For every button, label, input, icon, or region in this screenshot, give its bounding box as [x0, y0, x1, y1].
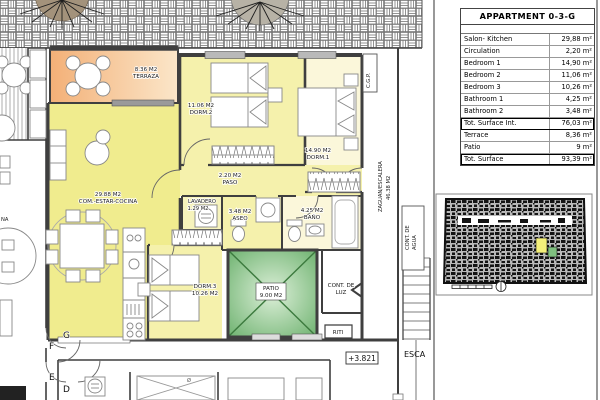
svg-text:ASEO: ASEO [232, 216, 248, 222]
paso-label: 2.20 M2 [219, 173, 242, 179]
svg-text:DORM.1: DORM.1 [307, 155, 330, 161]
wardrobe [308, 172, 360, 192]
dorm1-label: 14.90 M2 [305, 148, 331, 154]
svg-text:TERRAZA: TERRAZA [132, 74, 159, 80]
svg-text:46.38 M2: 46.38 M2 [386, 176, 392, 200]
svg-text:COM.-ESTAR-COCINA: COM.-ESTAR-COCINA [79, 199, 138, 205]
unit-letter-f: F [49, 342, 54, 352]
cont-luz-label: CONT. DE [328, 283, 355, 289]
wardrobe [212, 146, 274, 164]
svg-text:LUZ: LUZ [336, 290, 347, 296]
unit-letter-e: E [49, 373, 55, 383]
svg-text:BAÑO: BAÑO [304, 214, 321, 221]
table-row: Bedroom 114,90 m² [461, 58, 594, 70]
table-row: Bathroom 14,25 m² [461, 94, 594, 106]
key-plan [436, 194, 592, 295]
level-marker: +3.821 [348, 354, 376, 363]
table-row: Bedroom 211,06 m² [461, 70, 594, 82]
toilet [231, 220, 246, 242]
toilet [287, 220, 302, 242]
svg-text:PASO: PASO [223, 180, 238, 186]
svg-text:AGUA: AGUA [412, 235, 418, 250]
plant [85, 141, 109, 165]
bathtub [332, 196, 358, 248]
table-row: Terrace8,36 m² [461, 130, 594, 142]
table-row-total-surface: Tot. Surface93,39 m² [461, 154, 594, 165]
nightstand [344, 138, 358, 150]
diameter-symbol: Ø [187, 377, 191, 384]
table-row: Circulation2,20 m² [461, 46, 594, 58]
svg-text:1.29 M2: 1.29 M2 [188, 206, 209, 212]
table-row: Salon- Kitchen29,88 m² [461, 34, 594, 46]
keyplan-highlighted-patio [548, 247, 557, 257]
neighbor-unit-below [85, 376, 322, 400]
salon-label: 29.88 M2 [95, 192, 121, 198]
wardrobe [172, 230, 222, 245]
dorm2-label: 11.06 M2 [188, 103, 214, 109]
nightstand [268, 88, 282, 102]
cont-agua-label: CONT. DE [405, 225, 411, 250]
nightstand [344, 74, 358, 86]
keyplan-highlighted-unit [536, 238, 547, 253]
partial-label: NA [1, 217, 9, 223]
table-row-total-interior: Tot. Surface Int.76,03 m² [461, 118, 594, 130]
svg-text:9.00 M2: 9.00 M2 [260, 293, 283, 299]
shower [256, 198, 280, 222]
aseo-label: 3.48 M2 [229, 209, 252, 215]
apartment-title: APPARTMENT 0-3-G [461, 9, 594, 25]
floor-plan-sheet: 8.36 M2 TERRAZA 29.88 M2 COM.-ESTAR-COCI… [0, 0, 600, 400]
lavadero-label: LAVADERO [188, 199, 216, 205]
svg-text:DORM.2: DORM.2 [190, 110, 213, 116]
terraza-label: 8.36 M2 [135, 67, 158, 73]
escalera-label: ESCA [404, 350, 426, 359]
dining-table [60, 224, 104, 268]
areas-summary-table: APPARTMENT 0-3-G Salon- Kitchen29,88 m² … [460, 8, 595, 166]
zaguan-label: ZAGUAN/ESCALERA [378, 161, 384, 212]
patio-label: PATIO [263, 286, 279, 292]
unit-letter-d: D [63, 385, 70, 395]
cgp-label: C.G.P. [366, 73, 372, 88]
svg-text:10.26 M2: 10.26 M2 [192, 291, 218, 297]
staircase [403, 258, 430, 400]
corner-block [0, 386, 26, 400]
table-row: Bathroom 23,48 m² [461, 106, 594, 118]
table-row: Bedroom 310,26 m² [461, 82, 594, 94]
sofa [50, 130, 66, 180]
sink [306, 224, 324, 236]
dorm3-label: DORM.3 [194, 284, 217, 290]
sliding-door [112, 100, 174, 106]
nightstand [138, 283, 150, 296]
bano-label: 4.25 M2 [301, 208, 324, 214]
table-row: Patio9 m² [461, 142, 594, 154]
unit-letter-g: G [63, 331, 70, 341]
riti-label: RITI [333, 330, 344, 336]
